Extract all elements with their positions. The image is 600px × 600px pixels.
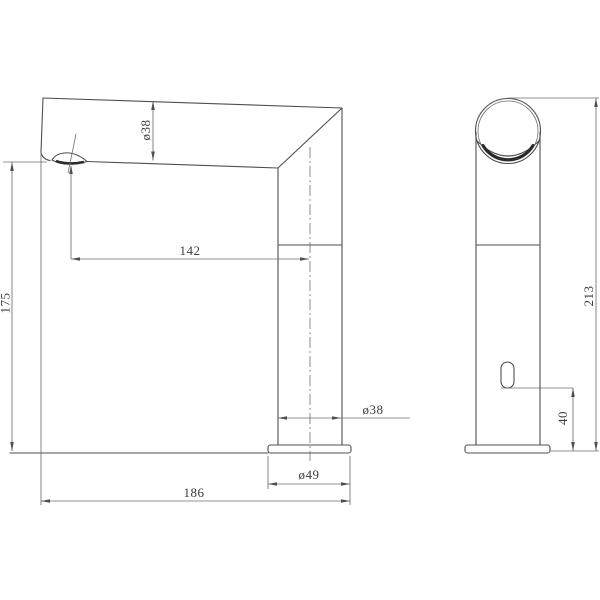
spout-end-cap-outer [476, 99, 541, 164]
dimension-overall-height: 213 [508, 98, 599, 451]
dimension-spout-height: 175 [0, 162, 47, 451]
spout-top-edge [43, 98, 342, 108]
dimension-overall-length: 186 [41, 152, 350, 505]
faucet-outline [10, 98, 351, 461]
technical-drawing-page: ø38 142 175 ø38 ø49 [0, 0, 600, 600]
body-diameter-label: ø38 [363, 402, 384, 417]
end-cap-shading-arc [483, 146, 533, 160]
front-view: ø38 142 175 ø38 ø49 [0, 98, 410, 505]
spout-left-edge [41, 98, 43, 152]
base-diameter-label: ø49 [299, 467, 320, 482]
sensor-height-label: 40 [555, 411, 570, 425]
dimension-spout-reach: 142 [71, 166, 309, 259]
side-outline [465, 99, 550, 454]
miter-joint-line [278, 108, 342, 168]
spout-diameter-label: ø38 [138, 120, 153, 141]
dimension-spout-diameter: ø38 [138, 101, 153, 161]
overall-length-label: 186 [184, 485, 205, 500]
spout-reach-label: 142 [180, 243, 201, 258]
dimension-body-diameter: ø38 [278, 402, 410, 418]
side-view: 40 213 [465, 98, 599, 453]
spout-tip-curve [41, 152, 50, 161]
spout-height-label: 175 [0, 293, 13, 314]
spout-bottom-edge [87, 162, 278, 169]
side-base-flange [465, 445, 550, 453]
overall-height-label: 213 [581, 286, 596, 307]
base-flange [268, 445, 351, 453]
faucet-dimension-drawing: ø38 142 175 ø38 ø49 [0, 0, 600, 600]
sensor-window [501, 362, 514, 388]
dimension-sensor-height: 40 [501, 388, 599, 451]
dimension-base-diameter: ø49 [268, 456, 350, 505]
